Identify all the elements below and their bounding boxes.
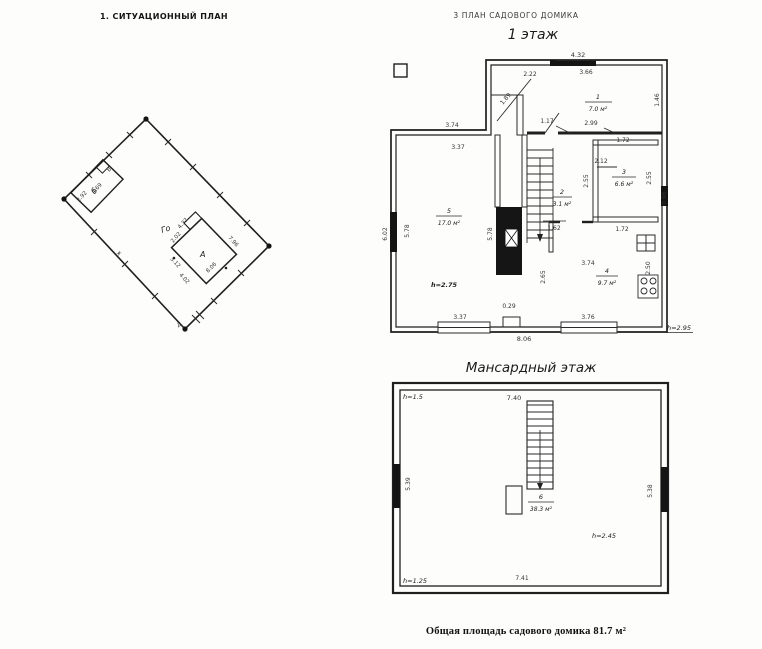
dim-top-overall: 4.32: [571, 51, 585, 59]
dim-bottom-right: 3.76: [581, 314, 595, 321]
attic-height-top-left: h=1.5: [403, 393, 423, 401]
dim-room3-shelf: 2.12: [594, 158, 608, 165]
label-v: В: [106, 166, 113, 173]
legend-square: [394, 64, 407, 77]
dim-kitchen: 2.50: [645, 261, 652, 275]
drawing-canvas: 1. СИТУАЦИОННЫЙ ПЛАН 3 ПЛАН САДОВОГО ДОМ…: [0, 0, 762, 649]
dim-upper-wall: 3.74: [445, 122, 459, 129]
house-a-letter: А: [199, 250, 205, 259]
floor1-height: h=2.95: [667, 324, 691, 332]
outer-wall: [391, 60, 667, 332]
floor1-plan: 4.32 3.66 2.22 1.89 1.46 3.74 3.37 1.17 …: [382, 51, 693, 343]
entry-stub-wall: [517, 95, 523, 135]
dim-attic-left: 5.39: [405, 477, 412, 491]
stove-door: [505, 229, 518, 247]
room3-bottom-wall: [593, 217, 658, 222]
site-plan-title: 1. СИТУАЦИОННЫЙ ПЛАН: [100, 10, 228, 21]
dim-a-se: 8.06: [205, 261, 218, 274]
room3-left-wall: [593, 140, 598, 222]
dim-top-small: 2.22: [523, 71, 537, 78]
dim-hall-door: 1.62: [547, 225, 561, 232]
dim-left-inner: 5.78: [404, 224, 411, 238]
dim-window-right: 0.96: [661, 191, 668, 205]
attic-window-right: [661, 467, 668, 512]
bottom-notch: [503, 317, 520, 327]
room4-area: 9.7 м²: [598, 280, 617, 287]
kitchen-sink: [637, 235, 655, 251]
room5-height: h=2.75: [431, 281, 458, 289]
total-area-caption: Общая площадь садового домика 81.7 м²: [426, 626, 626, 637]
attic-title: Мансардный этаж: [466, 360, 597, 376]
window-bottom-left: [438, 322, 490, 333]
dim-a-sw1: 3.12: [169, 256, 182, 269]
dim-left-outer: 6.02: [382, 227, 389, 241]
dim-wall-right: 2.55: [646, 171, 653, 185]
dim-b-width: 2.92: [76, 190, 89, 203]
dim-bottom-left: 3.37: [453, 314, 467, 321]
floor1-title: 1 этаж: [508, 27, 559, 43]
attic-ceiling-height: h=2.45: [592, 532, 616, 540]
wall-room5: [495, 135, 500, 207]
site-plan: б 2.92 4.69 В А Го 4.37 2.02 3.12 4.02 8…: [61, 116, 271, 331]
attic-height-bottom-left: h=1.25: [403, 577, 427, 585]
site-dot: [225, 267, 228, 270]
dim-room1-bottom: 2.99: [584, 120, 598, 127]
house-plan-title: 3 ПЛАН САДОВОГО ДОМИКА: [453, 11, 578, 20]
window-left: [390, 212, 397, 252]
room5-number: 5: [447, 207, 451, 215]
room3-number: 3: [622, 168, 626, 176]
room4-number: 4: [605, 267, 609, 275]
dim-a-sw2: 4.02: [178, 272, 191, 285]
room3-area: 6.6 м²: [615, 181, 634, 188]
attic-chimney: [506, 486, 522, 514]
dim-attic-bottom: 7.41: [515, 575, 529, 582]
dim-bottom-overall: 8.06: [517, 335, 531, 343]
dim-notch: 0.29: [502, 303, 516, 310]
attic-plan: 7.40 h=1.5 h=1.25 5.39 5.38 6 38.3 м² h=…: [393, 383, 668, 593]
room1-area: 7.0 м²: [589, 106, 608, 113]
dim-room3-top: 1.72: [616, 137, 630, 144]
stairs-attic: [527, 401, 553, 489]
room5-area: 17.0 м²: [438, 220, 461, 227]
window-top: [550, 60, 596, 66]
dim-room1-right: 1.46: [654, 93, 661, 107]
room6-number: 6: [539, 493, 543, 501]
label-go: Го: [160, 223, 172, 234]
dim-mid-wall: 5.78: [487, 227, 494, 241]
house-a-outline: [165, 212, 236, 284]
dim-room4-left: 2.65: [540, 270, 547, 284]
wall-stairhall: [522, 135, 527, 207]
dim-top-inner: 3.66: [579, 69, 593, 76]
dim-room4-top: 3.74: [581, 260, 595, 267]
window-bottom-right: [561, 322, 617, 333]
dim-door-room1: 1.17: [540, 118, 554, 125]
room1-number: 1: [596, 93, 600, 101]
dim-attic-right: 5.38: [647, 484, 654, 498]
room6-area: 38.3 м²: [530, 506, 553, 513]
attic-window-left: [393, 464, 400, 508]
room2-area: 3.1 м²: [553, 201, 572, 208]
kitchen-stove: [638, 275, 658, 298]
dim-room5-top: 3.37: [451, 144, 465, 151]
room2-number: 2: [560, 188, 564, 196]
dim-room3-bottom: 1.72: [615, 226, 629, 233]
dim-attic-stairs: 7.40: [507, 394, 521, 402]
scanned-floor-plan-sheet: 1. СИТУАЦИОННЫЙ ПЛАН 3 ПЛАН САДОВОГО ДОМ…: [0, 0, 762, 649]
dim-room3-left: 2.55: [583, 174, 590, 188]
